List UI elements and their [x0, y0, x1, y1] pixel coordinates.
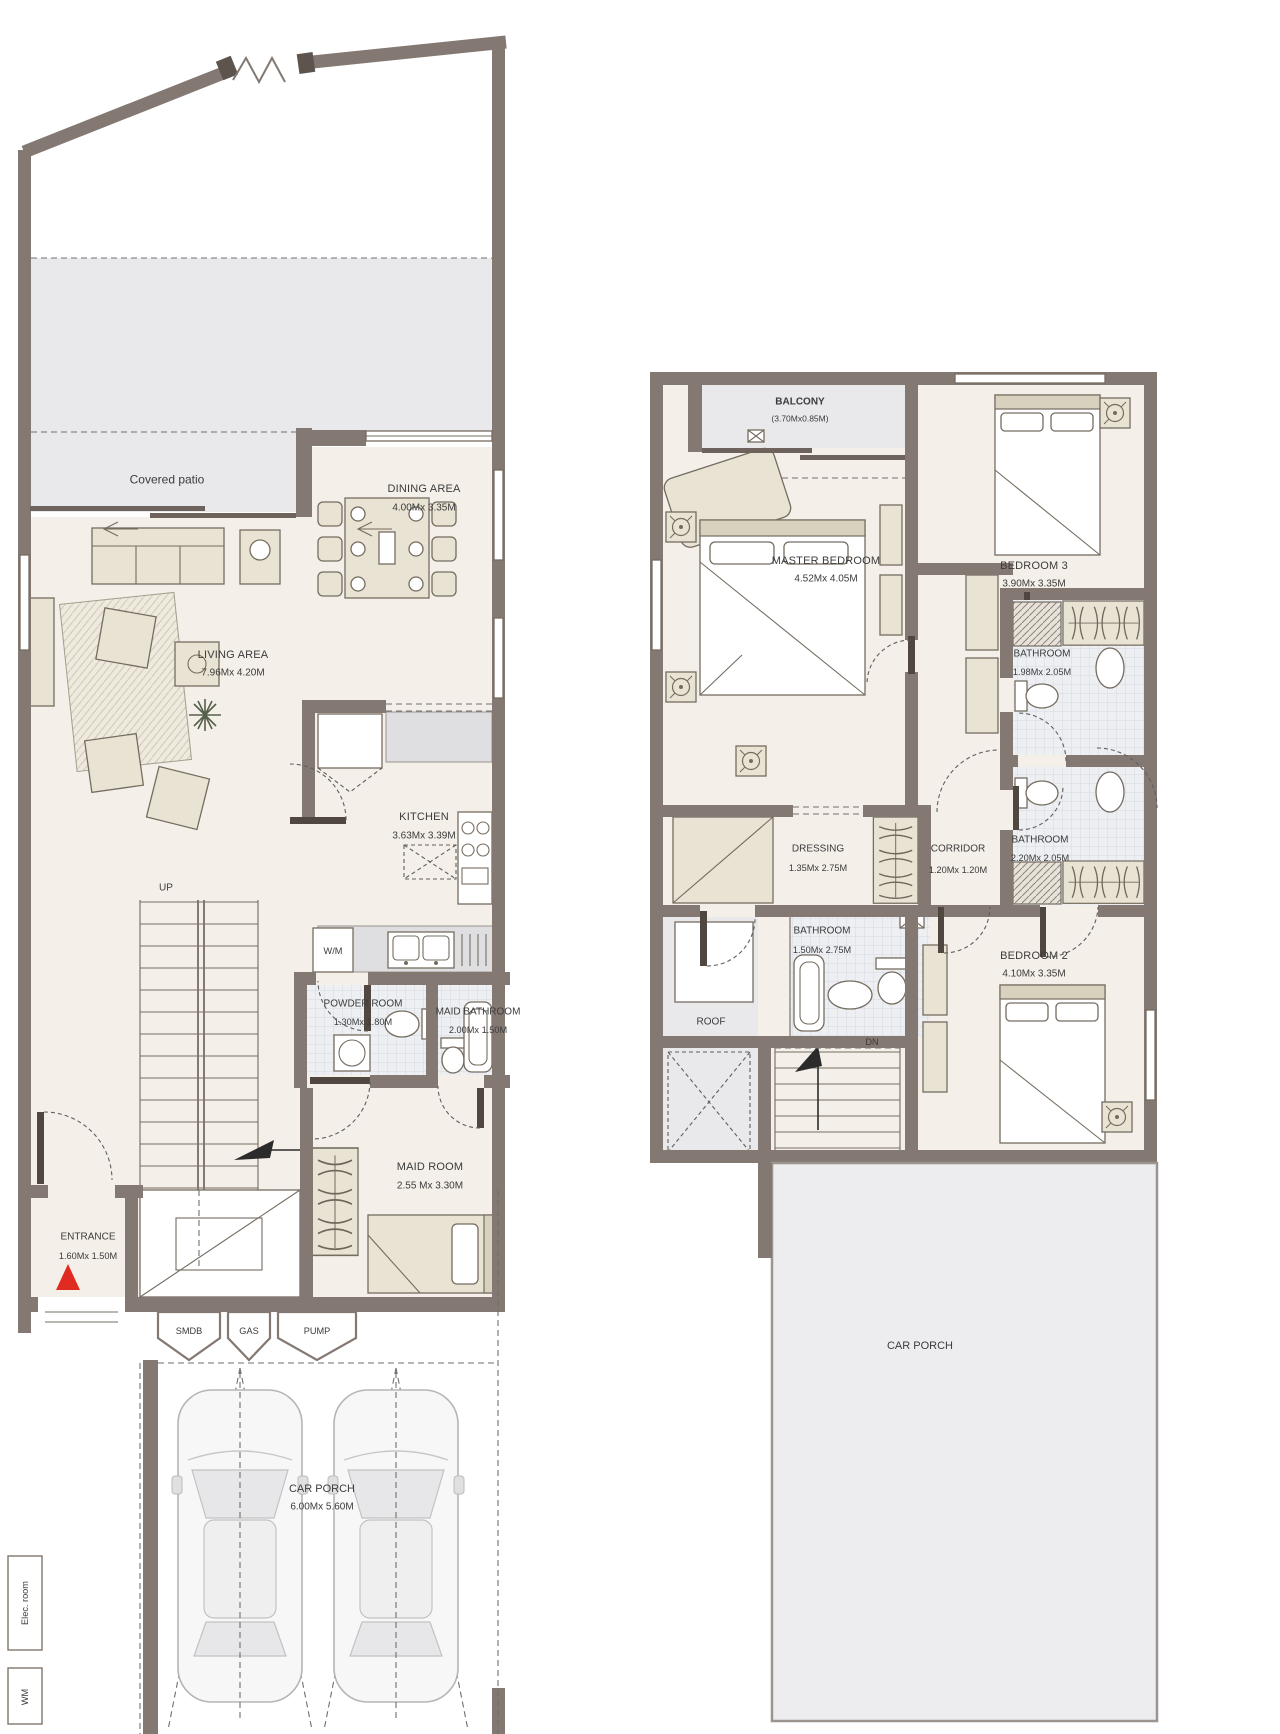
label-dressing-dims: 1.35Mx 2.75M — [789, 863, 847, 873]
pillow — [1051, 413, 1093, 431]
label-kitchen: KITCHEN — [399, 811, 449, 823]
skylight-box — [675, 922, 753, 1002]
floor-plan-page: Covered patio DINING AREA 4.00Mx 3.35M L… — [0, 0, 1280, 1734]
sink-icon — [388, 932, 454, 968]
label-covered-patio: Covered patio — [130, 473, 205, 486]
sliding-door — [150, 513, 296, 518]
label-master-bedroom: MASTER BEDROOM — [772, 555, 881, 567]
dining-chair — [432, 572, 456, 596]
dining-chair — [318, 572, 342, 596]
label-powder-room: POWDER ROOM — [324, 999, 403, 1010]
sliding-door — [702, 448, 812, 453]
label-wm: W/M — [324, 946, 343, 956]
label-car-porch-ground: CAR PORCH — [289, 1483, 355, 1495]
cabinet — [923, 1022, 947, 1092]
kitchen-counter — [386, 712, 492, 762]
label-dining-area-dims: 4.00Mx 3.35M — [392, 503, 455, 514]
label-dn: DN — [865, 1037, 878, 1047]
first-floor-car-porch — [758, 1163, 1157, 1721]
label-balcony-dims: (3.70Mx0.85M) — [771, 414, 828, 423]
lamp-icon — [250, 540, 270, 560]
bathtub-icon — [794, 955, 824, 1031]
washbasin-icon — [1096, 648, 1124, 688]
label-entrance-dims: 1.60Mx 1.50M — [59, 1251, 117, 1261]
pillow — [1006, 1003, 1048, 1021]
wardrobe — [966, 575, 998, 650]
floor-plan-drawing — [0, 0, 1280, 1734]
label-gas: GAS — [239, 1326, 258, 1336]
label-smdb: SMDB — [176, 1326, 203, 1336]
window — [1146, 1010, 1155, 1100]
label-pump: PUMP — [304, 1326, 331, 1336]
label-master-bathroom-dims: 1.50Mx 2.75M — [793, 945, 851, 955]
pillow — [710, 542, 774, 564]
label-maid-room: MAID ROOM — [397, 1161, 464, 1173]
label-master-bedroom-dims: 4.52Mx 4.05M — [794, 574, 857, 585]
car-porch-outline — [772, 1163, 1157, 1721]
label-maid-bathroom: MAID BATHROOM — [436, 1007, 521, 1018]
sliding-door — [800, 455, 905, 460]
label-bedroom3: BEDROOM 3 — [1000, 560, 1068, 572]
label-bedroom3-dims: 3.90Mx 3.35M — [1002, 579, 1065, 590]
sliding-door — [30, 506, 205, 511]
armchair — [85, 734, 144, 793]
pillow — [452, 1224, 478, 1284]
label-corridor: CORRIDOR — [931, 844, 985, 855]
pillow — [1056, 1003, 1098, 1021]
label-powder-room-dims: 1.30Mx 1.80M — [334, 1017, 392, 1027]
gate-symbol — [233, 58, 285, 82]
dining-chair — [432, 537, 456, 561]
washbasin-icon — [828, 981, 872, 1009]
label-kitchen-dims: 3.63Mx 3.39M — [392, 831, 455, 842]
label-wm-box: WM — [20, 1689, 30, 1705]
label-roof: ROOF — [697, 1017, 726, 1028]
pillow — [1001, 413, 1043, 431]
label-bathroom3-dims: 1.98Mx 2.05M — [1013, 667, 1071, 677]
label-dressing: DRESSING — [792, 844, 844, 855]
label-up: UP — [159, 883, 173, 894]
armchair — [96, 608, 156, 668]
sofa — [92, 528, 224, 584]
cabinet — [880, 505, 902, 565]
window — [652, 560, 661, 650]
terrace-area — [31, 258, 492, 432]
label-entrance: ENTRANCE — [60, 1232, 115, 1243]
label-car-porch-first: CAR PORCH — [887, 1340, 953, 1352]
bed — [368, 1215, 498, 1293]
label-bedroom2-dims: 4.10Mx 3.35M — [1002, 969, 1065, 980]
window — [494, 470, 503, 560]
label-maid-room-dims: 2.55 Mx 3.30M — [397, 1181, 463, 1192]
label-elec-room: Elec. room — [20, 1581, 30, 1625]
label-car-porch-ground-dims: 6.00Mx 5.60M — [290, 1502, 353, 1513]
label-living-area-dims: 7.96Mx 4.20M — [201, 668, 264, 679]
first-floor-plan — [650, 372, 1157, 1721]
washbasin-icon — [1096, 772, 1124, 812]
toilet-icon — [876, 958, 908, 1004]
bed — [995, 395, 1100, 555]
window — [955, 374, 1105, 383]
bed — [1000, 985, 1105, 1143]
label-corridor-dims: 1.20Mx 1.20M — [929, 865, 987, 875]
shower-hatch — [1013, 862, 1061, 904]
shower-hatch — [1013, 602, 1061, 646]
label-bathroom3: BATHROOM — [1013, 649, 1070, 660]
cabinet — [923, 945, 947, 1015]
bed — [700, 520, 865, 695]
stove-icon — [458, 812, 492, 904]
window — [494, 618, 503, 698]
cabinet — [880, 575, 902, 635]
entrance-steps — [45, 1312, 118, 1322]
label-master-bathroom: BATHROOM — [793, 926, 850, 937]
label-balcony: BALCONY — [775, 397, 824, 408]
label-bathroom2-dims: 2.20Mx 2.05M — [1011, 853, 1069, 863]
wardrobe — [966, 658, 998, 733]
label-maid-bathroom-dims: 2.00Mx 1.50M — [449, 1025, 507, 1035]
label-dining-area: DINING AREA — [387, 483, 460, 495]
dining-chair — [318, 502, 342, 526]
kitchen-cabinet — [318, 714, 382, 768]
label-bathroom2: BATHROOM — [1011, 835, 1068, 846]
label-living-area: LIVING AREA — [198, 649, 269, 661]
ground-floor-plan — [8, 40, 510, 1734]
window — [20, 555, 29, 650]
dining-chair — [318, 537, 342, 561]
bench — [28, 598, 54, 706]
label-bedroom2: BEDROOM 2 — [1000, 950, 1068, 962]
